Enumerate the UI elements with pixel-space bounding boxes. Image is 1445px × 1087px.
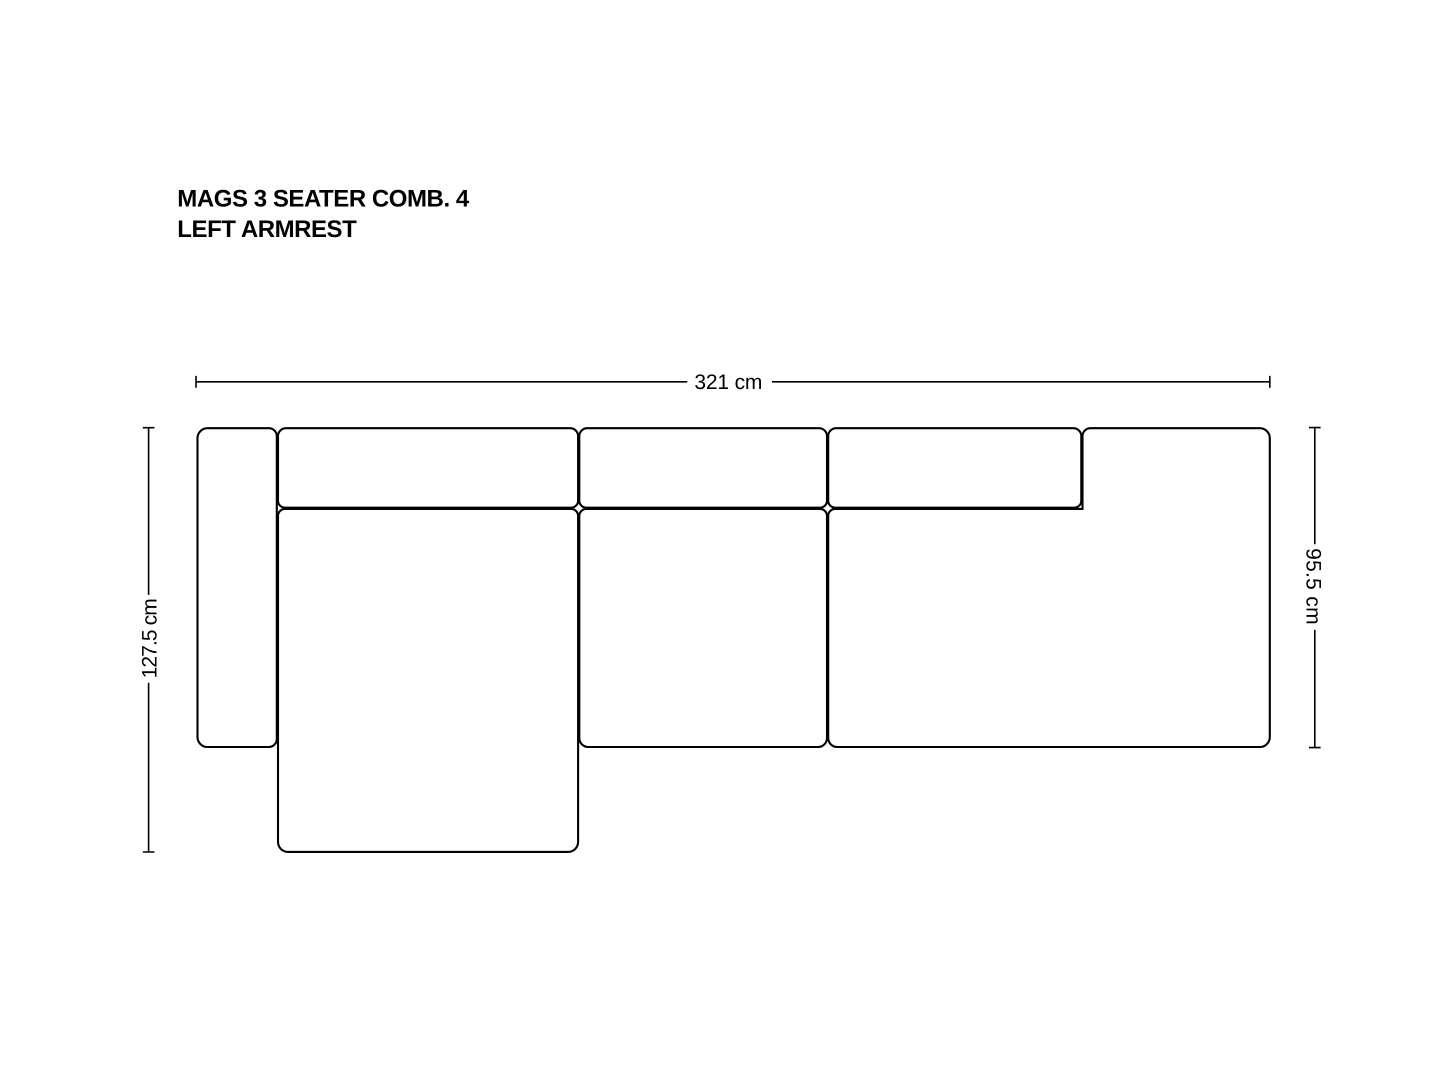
svg-text:LEFT ARMREST: LEFT ARMREST bbox=[177, 216, 357, 243]
svg-text:127.5 cm: 127.5 cm bbox=[138, 599, 161, 679]
svg-text:95.5 cm: 95.5 cm bbox=[1302, 548, 1325, 625]
svg-text:321 cm: 321 cm bbox=[694, 371, 762, 394]
svg-text:MAGS 3 SEATER COMB. 4: MAGS 3 SEATER COMB. 4 bbox=[177, 186, 470, 213]
